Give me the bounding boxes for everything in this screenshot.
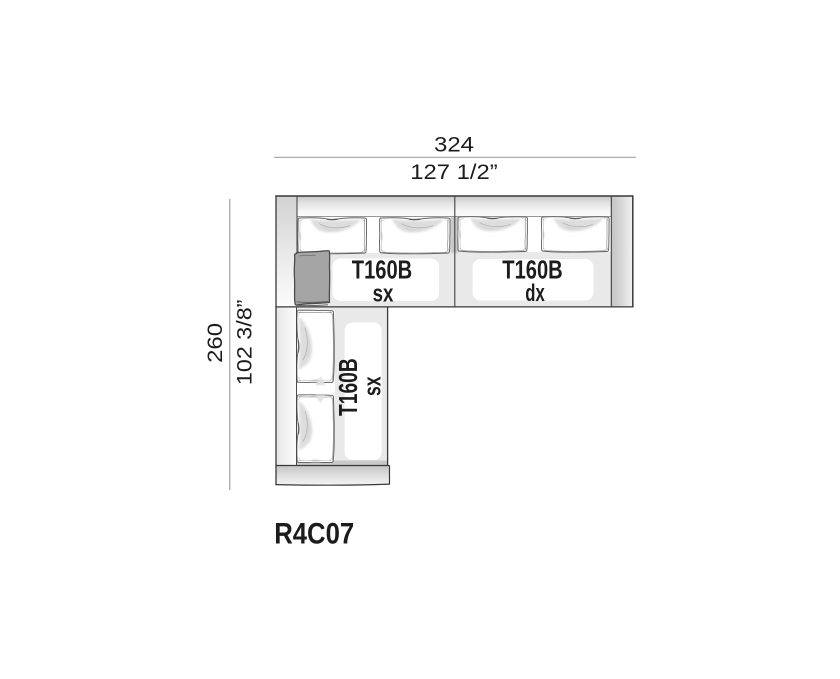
svg-text:127 1/2”: 127 1/2”	[410, 160, 498, 184]
svg-text:sx: sx	[373, 280, 394, 307]
svg-text:R4C07: R4C07	[274, 517, 354, 550]
svg-text:dx: dx	[525, 280, 545, 307]
svg-text:102 3/8”: 102 3/8”	[233, 300, 257, 386]
svg-text:324: 324	[434, 133, 474, 157]
svg-text:260: 260	[203, 323, 227, 363]
svg-text:sx: sx	[360, 376, 387, 396]
